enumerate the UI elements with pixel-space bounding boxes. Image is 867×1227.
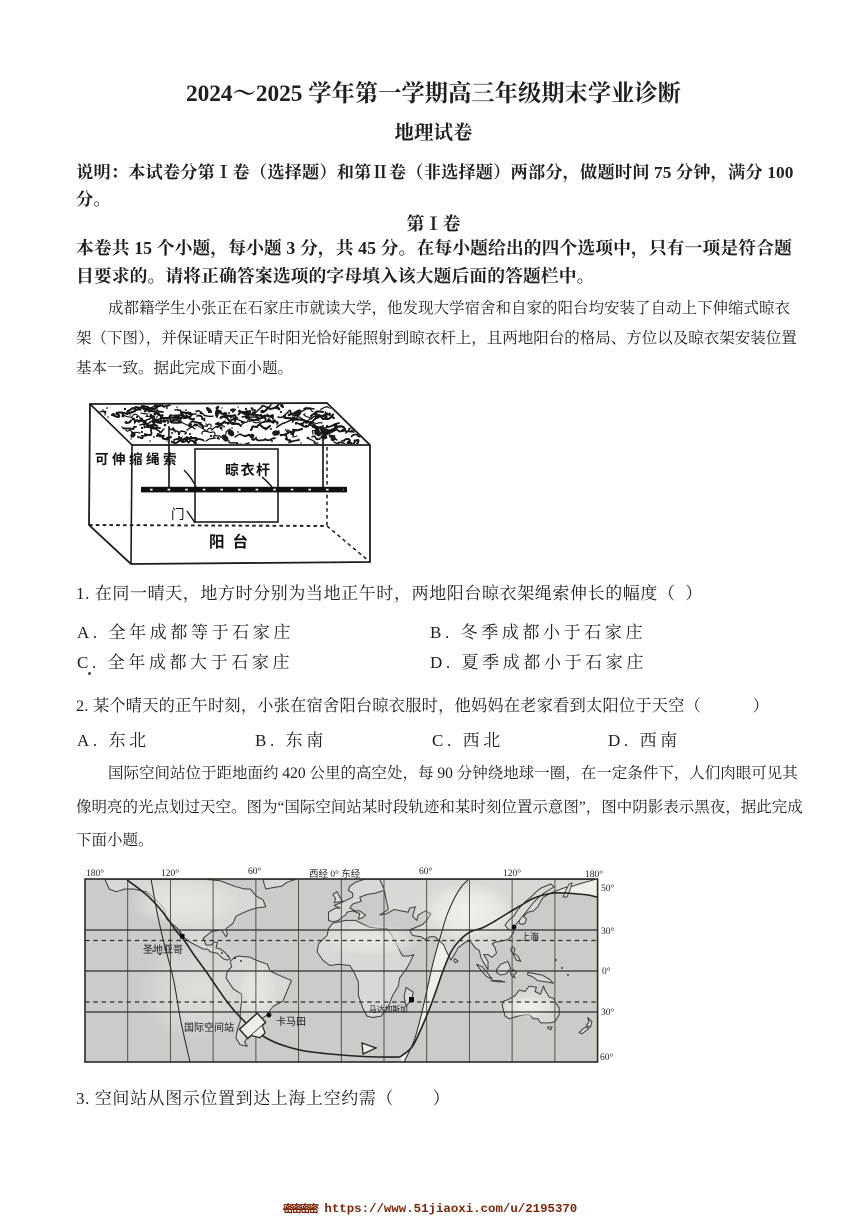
svg-text:0°: 0° (602, 966, 611, 977)
svg-text:60°: 60° (419, 866, 433, 877)
svg-text:60°: 60° (600, 1052, 614, 1063)
svg-text:180°: 180° (585, 869, 603, 880)
svg-text:180°: 180° (86, 868, 104, 879)
svg-text:马达加斯加: 马达加斯加 (369, 1004, 408, 1014)
svg-text:120°: 120° (161, 868, 179, 879)
svg-text:上海: 上海 (521, 931, 539, 942)
svg-text:阳台: 阳台 (209, 532, 256, 551)
svg-text:晾衣杆: 晾衣杆 (225, 462, 272, 478)
svg-text:120°: 120° (503, 868, 521, 879)
svg-text:圣地亚哥: 圣地亚哥 (143, 943, 183, 956)
svg-text:可伸缩绳索: 可伸缩绳索 (95, 451, 180, 467)
svg-text:30°: 30° (601, 926, 615, 937)
svg-text:30°: 30° (601, 1007, 615, 1018)
svg-text:50°: 50° (601, 883, 615, 894)
svg-text:国际空间站: 国际空间站 (184, 1021, 234, 1034)
svg-text:60°: 60° (248, 866, 262, 877)
svg-text:西经 0° 东经: 西经 0° 东经 (309, 868, 361, 880)
svg-text:卡马田: 卡马田 (276, 1015, 306, 1028)
svg-text:门: 门 (171, 507, 185, 522)
